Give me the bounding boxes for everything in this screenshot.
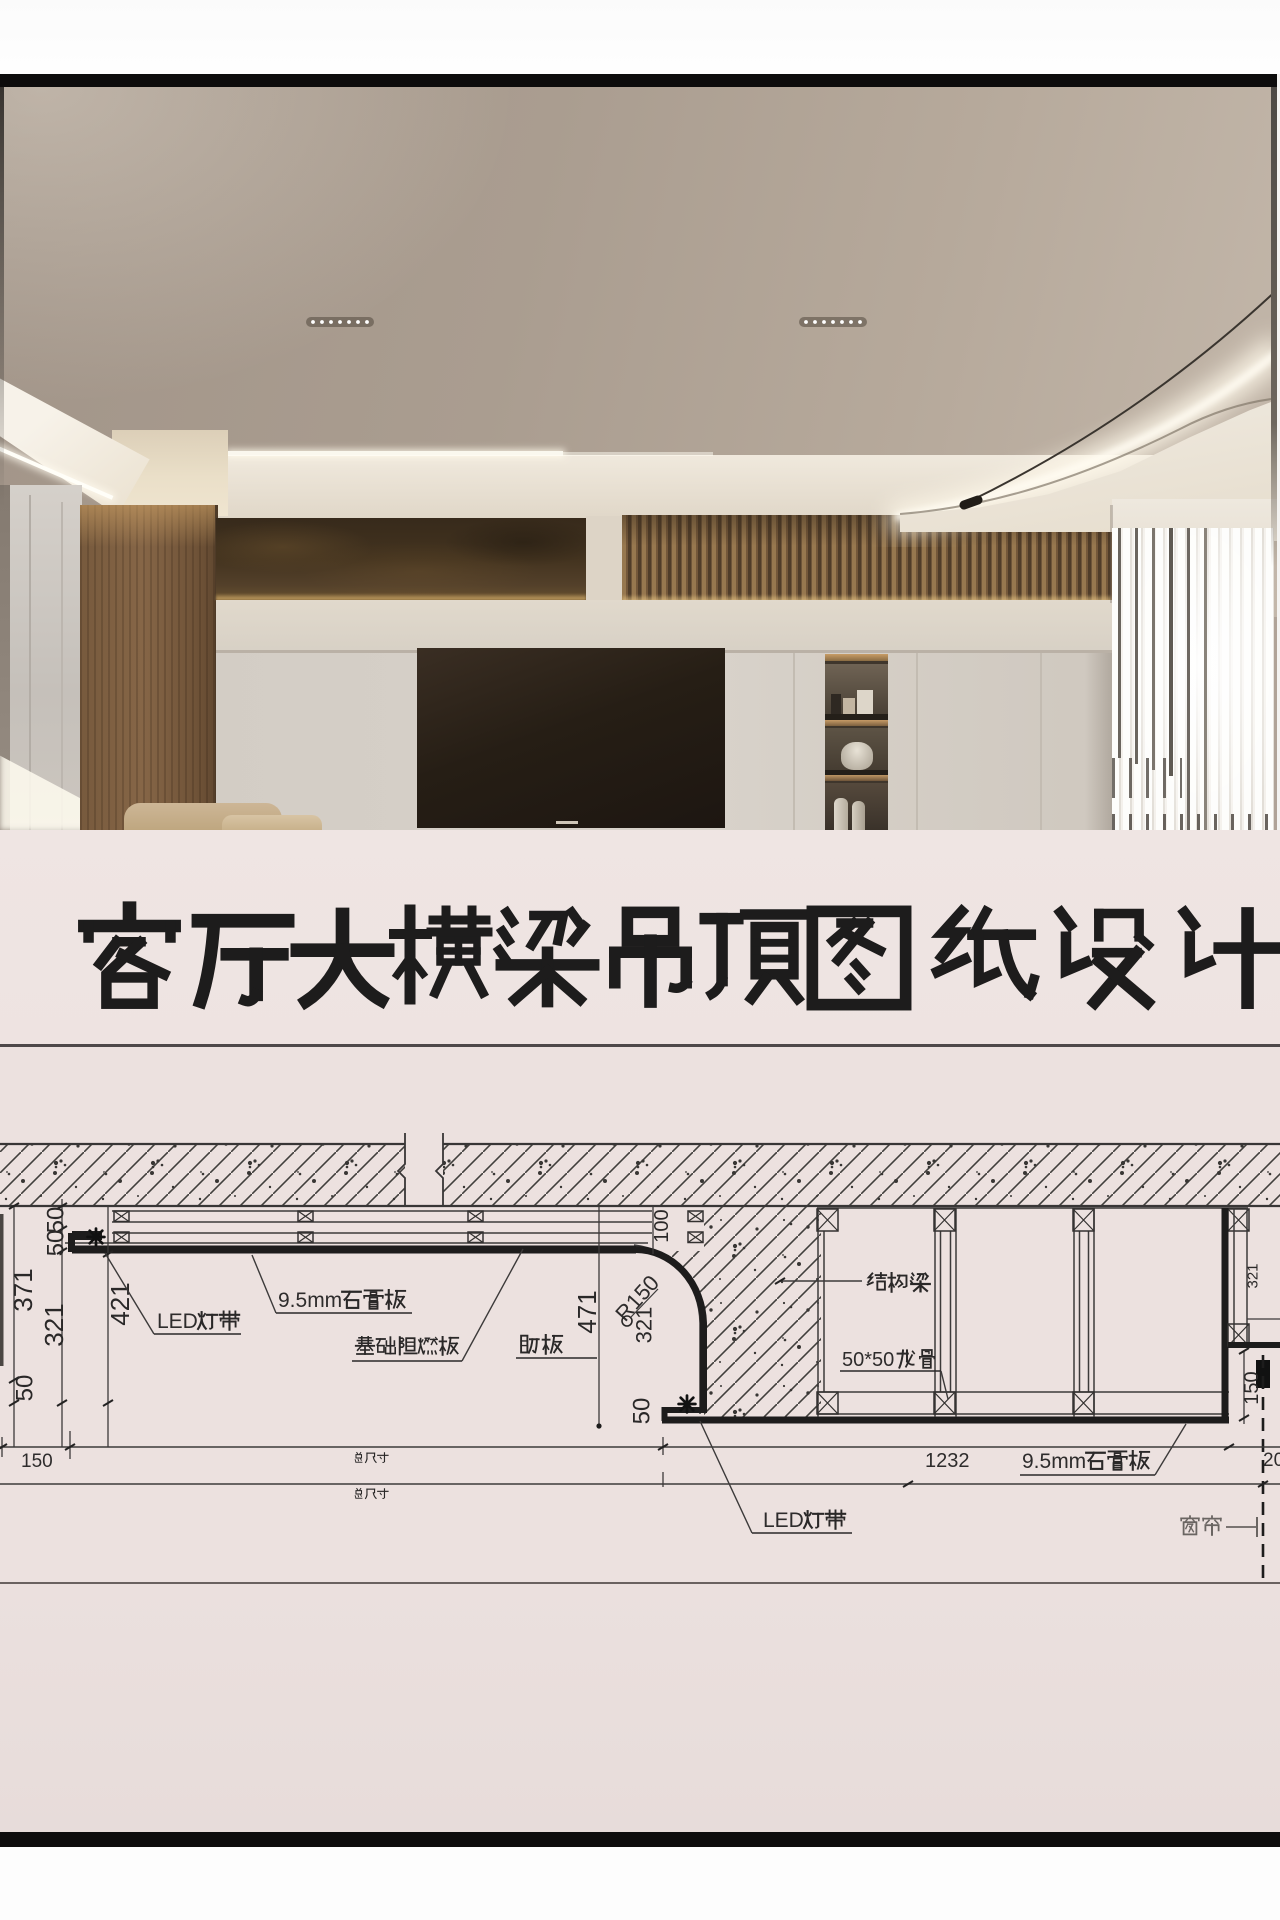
svg-text:LED: LED bbox=[157, 1310, 198, 1333]
svg-text:50*50: 50*50 bbox=[842, 1349, 894, 1371]
svg-text:50: 50 bbox=[11, 1375, 38, 1402]
svg-text:371: 371 bbox=[8, 1268, 38, 1311]
svg-text:50: 50 bbox=[42, 1207, 69, 1234]
svg-text:50: 50 bbox=[628, 1398, 655, 1425]
svg-text:9.5mm: 9.5mm bbox=[1022, 1450, 1086, 1473]
svg-text:421: 421 bbox=[105, 1282, 135, 1325]
svg-text:20: 20 bbox=[1263, 1450, 1280, 1471]
svg-text:LED: LED bbox=[763, 1509, 804, 1532]
svg-text:150: 150 bbox=[1241, 1371, 1263, 1404]
svg-text:1232: 1232 bbox=[925, 1450, 970, 1472]
svg-text:50: 50 bbox=[42, 1230, 69, 1257]
svg-text:100: 100 bbox=[651, 1209, 673, 1242]
svg-text:471: 471 bbox=[572, 1290, 602, 1333]
svg-text:9.5mm: 9.5mm bbox=[278, 1289, 342, 1312]
svg-text:321: 321 bbox=[39, 1303, 69, 1346]
svg-text:150: 150 bbox=[21, 1451, 53, 1472]
svg-text:321: 321 bbox=[1244, 1263, 1261, 1288]
